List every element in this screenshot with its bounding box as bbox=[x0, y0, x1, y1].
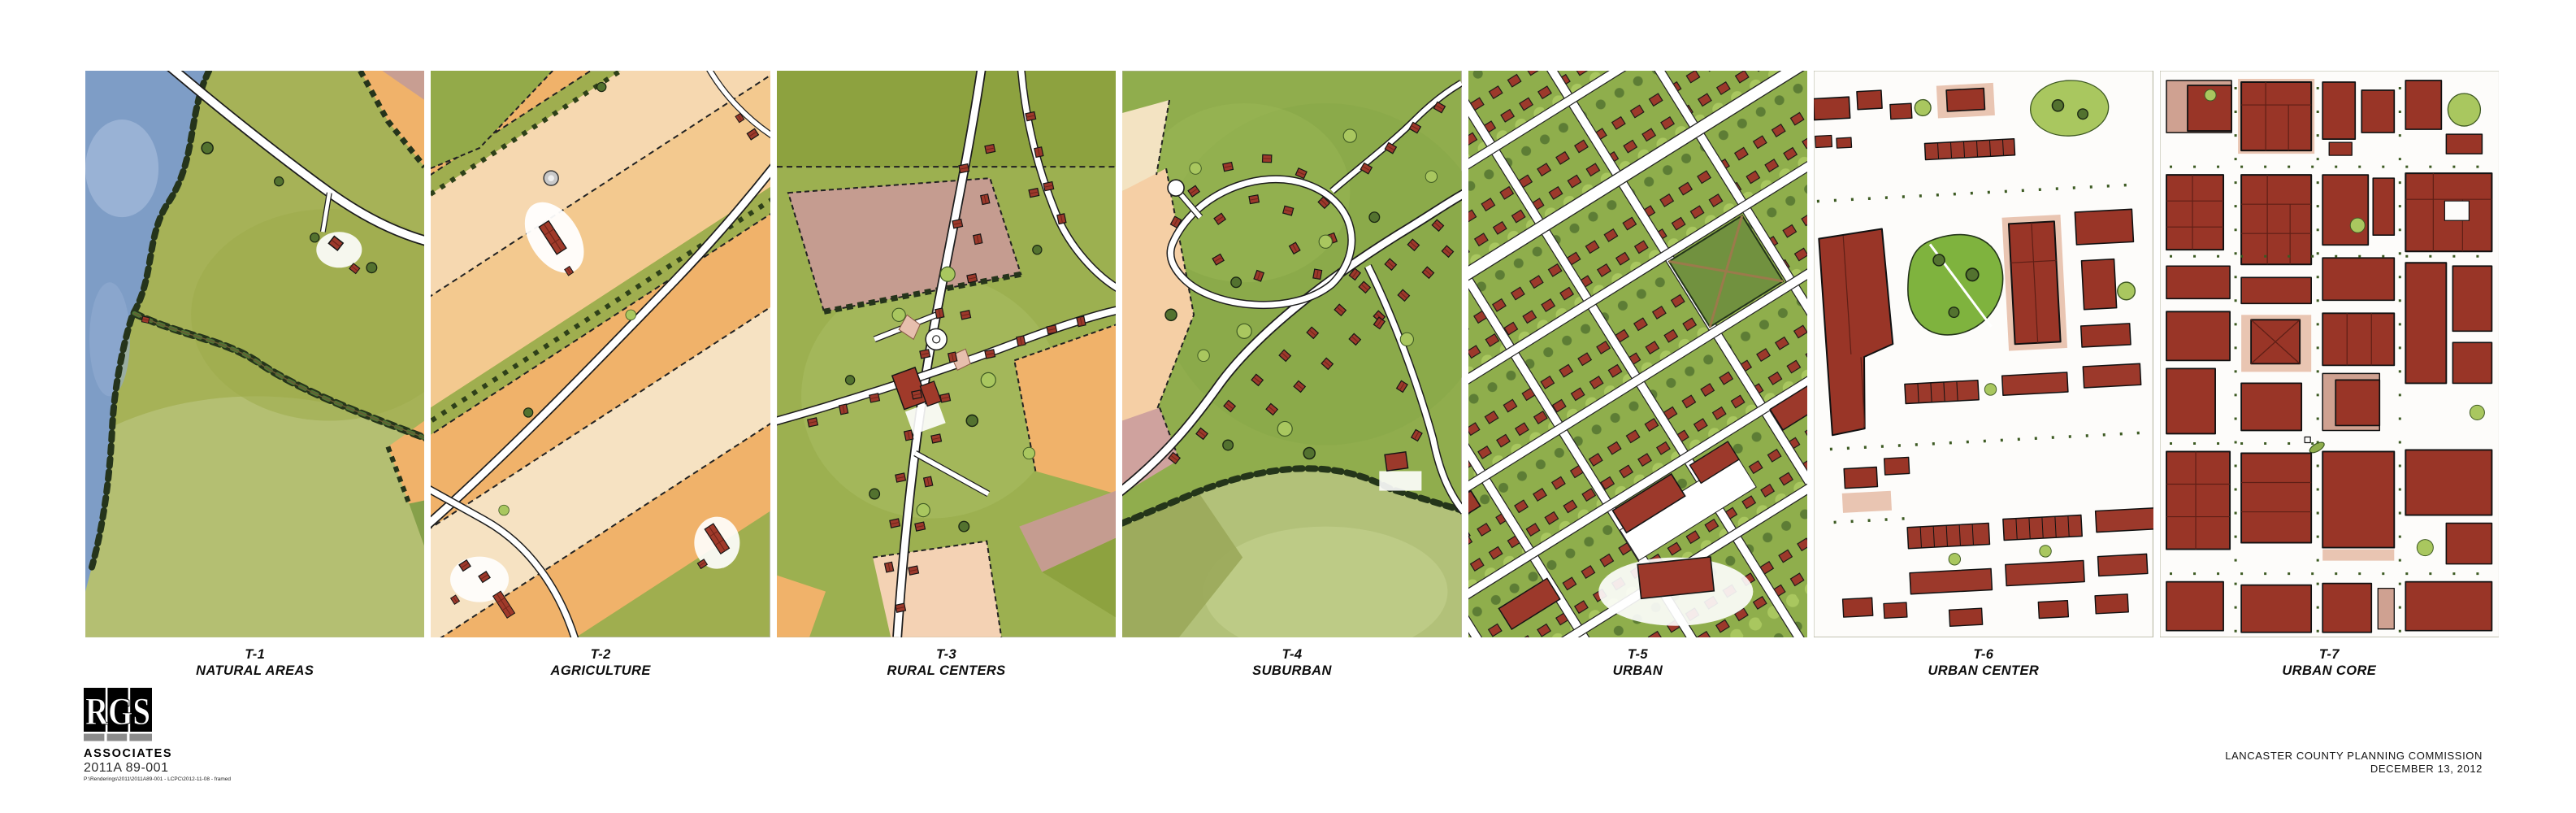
panel-name: URBAN CORE bbox=[2160, 663, 2499, 679]
panel-code: T-3 bbox=[777, 646, 1116, 663]
panel-name: SUBURBAN bbox=[1122, 663, 1461, 679]
panel-t7 bbox=[2160, 71, 2499, 637]
panel-t5 bbox=[1468, 71, 1807, 637]
panel-code: T-1 bbox=[85, 646, 424, 663]
panel-t2 bbox=[431, 71, 770, 637]
panel-caption-t2: T-2AGRICULTURE bbox=[431, 646, 770, 679]
panel-name: URBAN CENTER bbox=[1814, 663, 2153, 679]
panel-t5-illustration bbox=[1468, 71, 1807, 637]
credit-block: LANCASTER COUNTY PLANNING COMMISSION DEC… bbox=[2225, 750, 2483, 776]
panel-t4-illustration bbox=[1122, 71, 1461, 637]
panel-captions: T-1NATURAL AREAS T-2AGRICULTURE T-3RURAL… bbox=[85, 646, 2499, 679]
panel-t1-illustration bbox=[85, 71, 424, 637]
panel-caption-t6: T-6URBAN CENTER bbox=[1814, 646, 2153, 679]
firm-name: ASSOCIATES bbox=[84, 747, 262, 760]
panel-code: T-4 bbox=[1122, 646, 1461, 663]
panel-t2-illustration bbox=[431, 71, 770, 637]
panel-t4 bbox=[1122, 71, 1461, 637]
panel-t7-illustration bbox=[2160, 71, 2499, 637]
panel-code: T-6 bbox=[1814, 646, 2153, 663]
panel-caption-t1: T-1NATURAL AREAS bbox=[85, 646, 424, 679]
rgs-logo: RGS bbox=[84, 688, 152, 741]
file-path: P:\Renderings\2011\2011A89-001 - LCPC\20… bbox=[84, 776, 262, 782]
rgs-logo-block: RGS ASSOCIATES 2011A 89-001 P:\Rendering… bbox=[84, 688, 262, 782]
panel-name: AGRICULTURE bbox=[431, 663, 770, 679]
project-number: 2011A 89-001 bbox=[84, 761, 262, 776]
panel-caption-t7: T-7URBAN CORE bbox=[2160, 646, 2499, 679]
panel-caption-t5: T-5URBAN bbox=[1468, 646, 1807, 679]
poster-date: DECEMBER 13, 2012 bbox=[2225, 763, 2483, 776]
panel-caption-t4: T-4SUBURBAN bbox=[1122, 646, 1461, 679]
panel-name: URBAN bbox=[1468, 663, 1807, 679]
panel-code: T-2 bbox=[431, 646, 770, 663]
panel-t6-illustration bbox=[1814, 71, 2153, 637]
panel-code: T-7 bbox=[2160, 646, 2499, 663]
transect-strip bbox=[85, 71, 2499, 637]
panel-caption-t3: T-3RURAL CENTERS bbox=[777, 646, 1116, 679]
transect-poster: { "poster": { "panels": [ {"code": "T-1"… bbox=[0, 0, 2576, 813]
panel-name: RURAL CENTERS bbox=[777, 663, 1116, 679]
agency-name: LANCASTER COUNTY PLANNING COMMISSION bbox=[2225, 750, 2483, 763]
panel-t3 bbox=[777, 71, 1116, 637]
logo-letters: RGS bbox=[85, 690, 150, 733]
panel-name: NATURAL AREAS bbox=[85, 663, 424, 679]
panel-t6 bbox=[1814, 71, 2153, 637]
panel-t3-illustration bbox=[777, 71, 1116, 637]
panel-code: T-5 bbox=[1468, 646, 1807, 663]
panel-t1 bbox=[85, 71, 424, 637]
